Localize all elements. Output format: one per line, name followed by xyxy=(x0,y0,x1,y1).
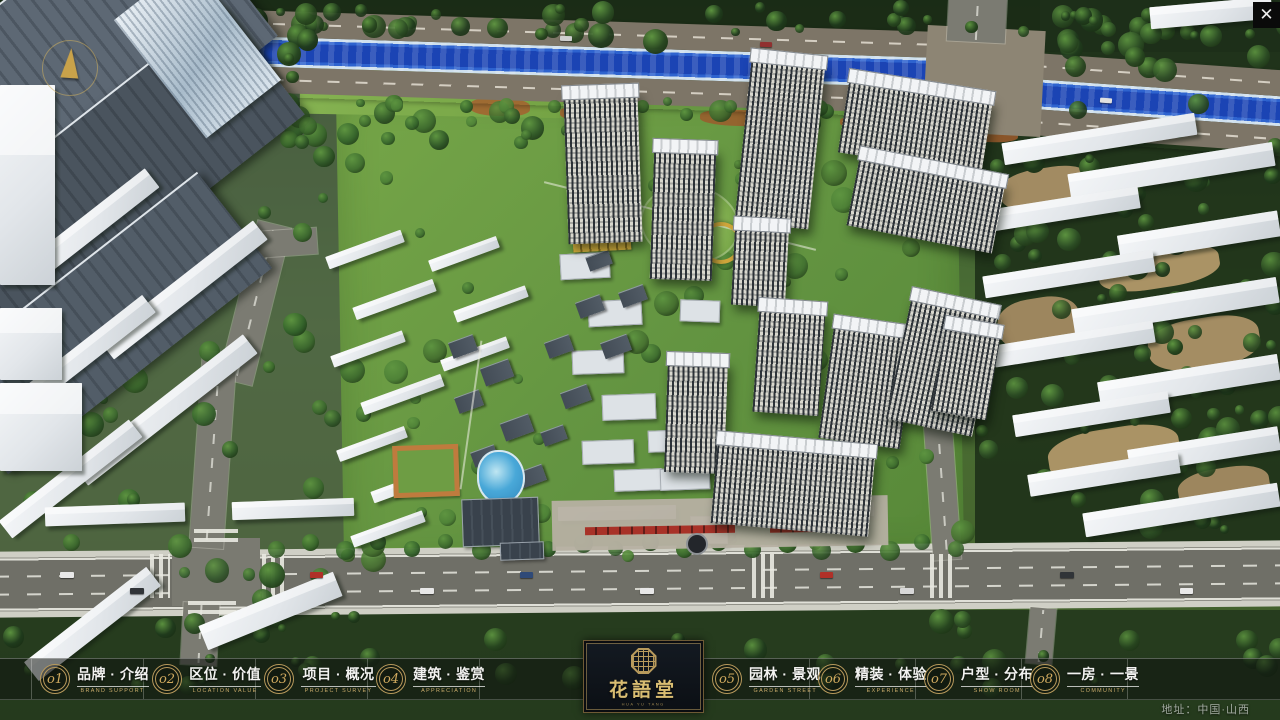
tree xyxy=(965,21,978,34)
tree xyxy=(297,29,319,51)
tree xyxy=(451,17,469,35)
menu-item-garden-landscape[interactable]: o5园林 · 景观GARDEN STREET xyxy=(704,659,810,699)
tree xyxy=(574,18,589,33)
tree xyxy=(168,534,192,558)
menu-item-caption: SHOW ROOM xyxy=(973,688,1020,693)
menu-number: o4 xyxy=(383,672,399,687)
highrise-tower xyxy=(650,147,717,281)
tree xyxy=(276,8,284,16)
tree xyxy=(1155,262,1170,277)
menu-number-ring: o1 xyxy=(43,667,67,691)
bar-spacer xyxy=(480,659,583,699)
menu-number-ring: o3 xyxy=(267,667,291,691)
tree xyxy=(994,254,1011,271)
tree xyxy=(103,407,118,422)
tree xyxy=(391,99,403,111)
tree xyxy=(1028,249,1042,263)
seal-emblem-icon xyxy=(631,648,657,674)
tree xyxy=(318,193,328,203)
tree xyxy=(1101,22,1116,37)
menu-number-ring: o4 xyxy=(379,667,403,691)
menu-number-ring: o2 xyxy=(155,667,179,691)
tree xyxy=(1052,300,1070,318)
highrise-tower xyxy=(563,92,642,244)
project-address: 地址：中国·山西 xyxy=(1161,701,1250,717)
tree xyxy=(1061,11,1070,20)
bar-left-pad xyxy=(0,659,32,699)
car xyxy=(760,42,772,47)
menu-item-interior-experience[interactable]: o6精装 · 体验EXPERIENCE xyxy=(810,659,916,699)
building-slab xyxy=(0,308,62,380)
menu-number: o1 xyxy=(47,672,63,687)
bar-right-pad xyxy=(1128,659,1280,699)
menu-number: o6 xyxy=(825,672,841,687)
tree xyxy=(431,9,441,19)
tree xyxy=(1235,405,1245,415)
tree xyxy=(179,567,190,578)
tree xyxy=(284,53,295,64)
tree xyxy=(504,108,520,124)
tree xyxy=(548,100,561,113)
menu-item-text: 区位 · 价值LOCATION VALUE xyxy=(189,664,261,694)
seal-pattern xyxy=(633,650,655,672)
tree xyxy=(484,628,507,651)
tree xyxy=(1006,377,1028,399)
menu-item-text: 建筑 · 鉴赏APPRECIATION xyxy=(413,664,485,694)
menu-item-divider xyxy=(413,686,485,687)
tree xyxy=(821,160,847,186)
tree xyxy=(1243,333,1261,351)
tree xyxy=(1138,214,1154,230)
tree xyxy=(460,100,473,113)
tree xyxy=(588,23,614,49)
menu-number: o5 xyxy=(719,672,735,687)
crosswalk xyxy=(194,528,238,542)
tree xyxy=(1153,58,1177,82)
tree xyxy=(731,28,739,36)
menu-number-badge-icon: o5 xyxy=(712,664,742,694)
tree xyxy=(439,509,456,526)
tree xyxy=(303,477,324,498)
tree xyxy=(1071,492,1086,507)
north-road xyxy=(947,0,1007,43)
menu-item-label: 品牌 · 介绍 xyxy=(77,664,149,684)
building-slab xyxy=(0,85,55,285)
highrise-tower xyxy=(711,439,876,536)
aerial-site-model[interactable] xyxy=(0,0,1280,720)
tree xyxy=(766,11,787,32)
tree xyxy=(521,130,531,140)
tree xyxy=(829,11,846,28)
menu-item-label: 建筑 · 鉴赏 xyxy=(413,664,485,684)
tree xyxy=(313,146,334,167)
car xyxy=(1100,98,1112,104)
project-logo-title: 花語堂 xyxy=(609,675,678,702)
menu-item-label: 项目 · 概况 xyxy=(303,664,375,684)
tree xyxy=(295,135,309,149)
car xyxy=(520,572,533,578)
menu-item-caption: EXPERIENCE xyxy=(867,688,915,693)
tree xyxy=(381,132,394,145)
car xyxy=(1060,572,1074,578)
tree xyxy=(1134,345,1151,362)
menu-item-caption: BRAND SUPPORT xyxy=(81,688,145,693)
tree xyxy=(663,97,672,106)
clubhouse-roof xyxy=(500,541,545,561)
menu-number-ring: o6 xyxy=(821,667,845,691)
tree xyxy=(592,1,614,23)
swimming-pool xyxy=(477,450,525,504)
car xyxy=(820,572,833,578)
bottom-menu-bar: o1品牌 · 介绍BRAND SUPPORTo2区位 · 价值LOCATION … xyxy=(0,658,1280,700)
menu-item-caption: LOCATION VALUE xyxy=(193,688,258,693)
menu-item-brand-intro[interactable]: o1品牌 · 介绍BRAND SUPPORT xyxy=(32,659,144,699)
tree xyxy=(1245,29,1255,39)
tree xyxy=(362,17,378,33)
tree xyxy=(243,568,255,580)
tree xyxy=(705,5,723,23)
menu-item-divider xyxy=(189,686,261,687)
tree xyxy=(555,4,565,14)
menu-item-caption: COMMUNITY xyxy=(1080,688,1125,693)
highrise-tower xyxy=(752,306,825,416)
car xyxy=(60,572,74,578)
menu-item-divider xyxy=(77,686,149,687)
compass-north-needle xyxy=(60,47,80,78)
menu-number-ring: o7 xyxy=(927,667,951,691)
tree xyxy=(1097,294,1106,303)
menu-item-unit-distribution[interactable]: o7户型 · 分布SHOW ROOM xyxy=(916,659,1022,699)
menu-item-text: 项目 · 概况PROJECT SURVEY xyxy=(301,664,376,694)
tree xyxy=(466,116,476,126)
tree xyxy=(1057,228,1080,251)
tree xyxy=(345,153,365,173)
tree xyxy=(1261,252,1280,277)
menu-number-badge-icon: o3 xyxy=(264,664,294,694)
crosswalk xyxy=(930,554,952,598)
tree xyxy=(1198,203,1209,214)
tree xyxy=(1171,408,1192,429)
car xyxy=(640,588,654,594)
tree xyxy=(535,28,547,40)
tree xyxy=(929,609,954,634)
tree xyxy=(155,618,176,639)
tree xyxy=(1069,101,1087,119)
menu-number-badge-icon: o2 xyxy=(152,664,182,694)
tree xyxy=(1264,168,1280,185)
project-logo[interactable]: 花語堂HUA YU TANG xyxy=(583,640,704,713)
menu-number-ring: o5 xyxy=(715,667,739,691)
menu-number-badge-icon: o4 xyxy=(376,664,406,694)
car xyxy=(900,588,914,594)
building-slab xyxy=(0,383,82,471)
menu-number-badge-icon: o7 xyxy=(924,664,954,694)
car xyxy=(420,588,434,594)
tree xyxy=(513,374,523,384)
tree xyxy=(359,115,371,127)
tree xyxy=(283,313,306,336)
building-lowrise xyxy=(680,299,721,322)
building-lowrise xyxy=(602,393,657,421)
highrise-tower xyxy=(731,225,789,308)
tree xyxy=(1041,384,1064,407)
tree xyxy=(622,550,634,562)
menu-item-divider xyxy=(301,686,376,687)
courtyard-building xyxy=(392,444,460,498)
tree xyxy=(1190,31,1199,40)
tree xyxy=(462,282,474,294)
tree xyxy=(286,71,298,83)
crosswalk xyxy=(188,600,236,614)
tree xyxy=(954,611,971,628)
tree xyxy=(680,108,693,121)
tree xyxy=(948,541,964,557)
tree xyxy=(331,612,340,621)
car xyxy=(560,36,572,41)
close-button[interactable]: ✕ xyxy=(1253,2,1280,28)
tree xyxy=(258,206,271,219)
menu-item-architecture-appreciation[interactable]: o4建筑 · 鉴赏APPRECIATION xyxy=(368,659,480,699)
tree xyxy=(205,558,230,583)
menu-item-caption: APPRECIATION xyxy=(421,688,477,693)
crosswalk xyxy=(752,554,774,598)
tree xyxy=(222,441,238,457)
tree xyxy=(487,18,508,39)
car xyxy=(1180,588,1193,594)
tree xyxy=(299,117,317,135)
tree xyxy=(355,4,367,16)
tree xyxy=(404,541,420,557)
tree xyxy=(1089,16,1098,25)
clubhouse-roof xyxy=(461,497,540,548)
tree xyxy=(976,425,988,437)
menu-item-caption: PROJECT SURVEY xyxy=(305,688,373,693)
entrance-circle xyxy=(686,533,708,555)
menu-number: o7 xyxy=(931,672,947,687)
tree xyxy=(923,15,932,24)
menu-item-text: 品牌 · 介绍BRAND SUPPORT xyxy=(77,664,149,694)
tree xyxy=(293,223,311,241)
menu-number-badge-icon: o1 xyxy=(40,664,70,694)
menu-number-badge-icon: o6 xyxy=(818,664,848,694)
tree xyxy=(886,456,899,469)
tree xyxy=(63,534,80,551)
tree xyxy=(893,0,909,16)
tree xyxy=(336,541,355,560)
building-lowrise xyxy=(582,439,635,465)
tree xyxy=(979,440,997,458)
project-logo-subtitle: HUA YU TANG xyxy=(622,702,665,707)
building-lowrise xyxy=(614,468,663,492)
tree xyxy=(1188,94,1208,114)
menu-item-caption: GARDEN STREET xyxy=(753,688,816,693)
tree xyxy=(1125,47,1144,66)
tree xyxy=(3,626,25,648)
presentation-window: ✕ o1品牌 · 介绍BRAND SUPPORTo2区位 · 价值LOCATIO… xyxy=(0,0,1280,720)
tree xyxy=(1188,325,1202,339)
menu-number: o2 xyxy=(159,672,175,687)
menu-item-one-room-one-view[interactable]: o8一房 · 一景COMMUNITY xyxy=(1022,659,1128,699)
menu-number: o3 xyxy=(271,672,287,687)
car xyxy=(310,572,323,578)
menu-item-location-value[interactable]: o2区位 · 价值LOCATION VALUE xyxy=(144,659,256,699)
menu-number: o8 xyxy=(1037,672,1053,687)
tree xyxy=(795,24,804,33)
menu-number-badge-icon: o8 xyxy=(1030,664,1060,694)
tree xyxy=(405,116,419,130)
menu-number-ring: o8 xyxy=(1033,667,1057,691)
tree xyxy=(348,611,360,623)
tree xyxy=(1200,25,1222,47)
car xyxy=(130,588,144,594)
tree xyxy=(919,449,934,464)
menu-item-project-overview[interactable]: o3项目 · 概况PROJECT SURVEY xyxy=(256,659,368,699)
menu-item-label: 区位 · 价值 xyxy=(189,664,261,684)
tree xyxy=(755,2,766,13)
